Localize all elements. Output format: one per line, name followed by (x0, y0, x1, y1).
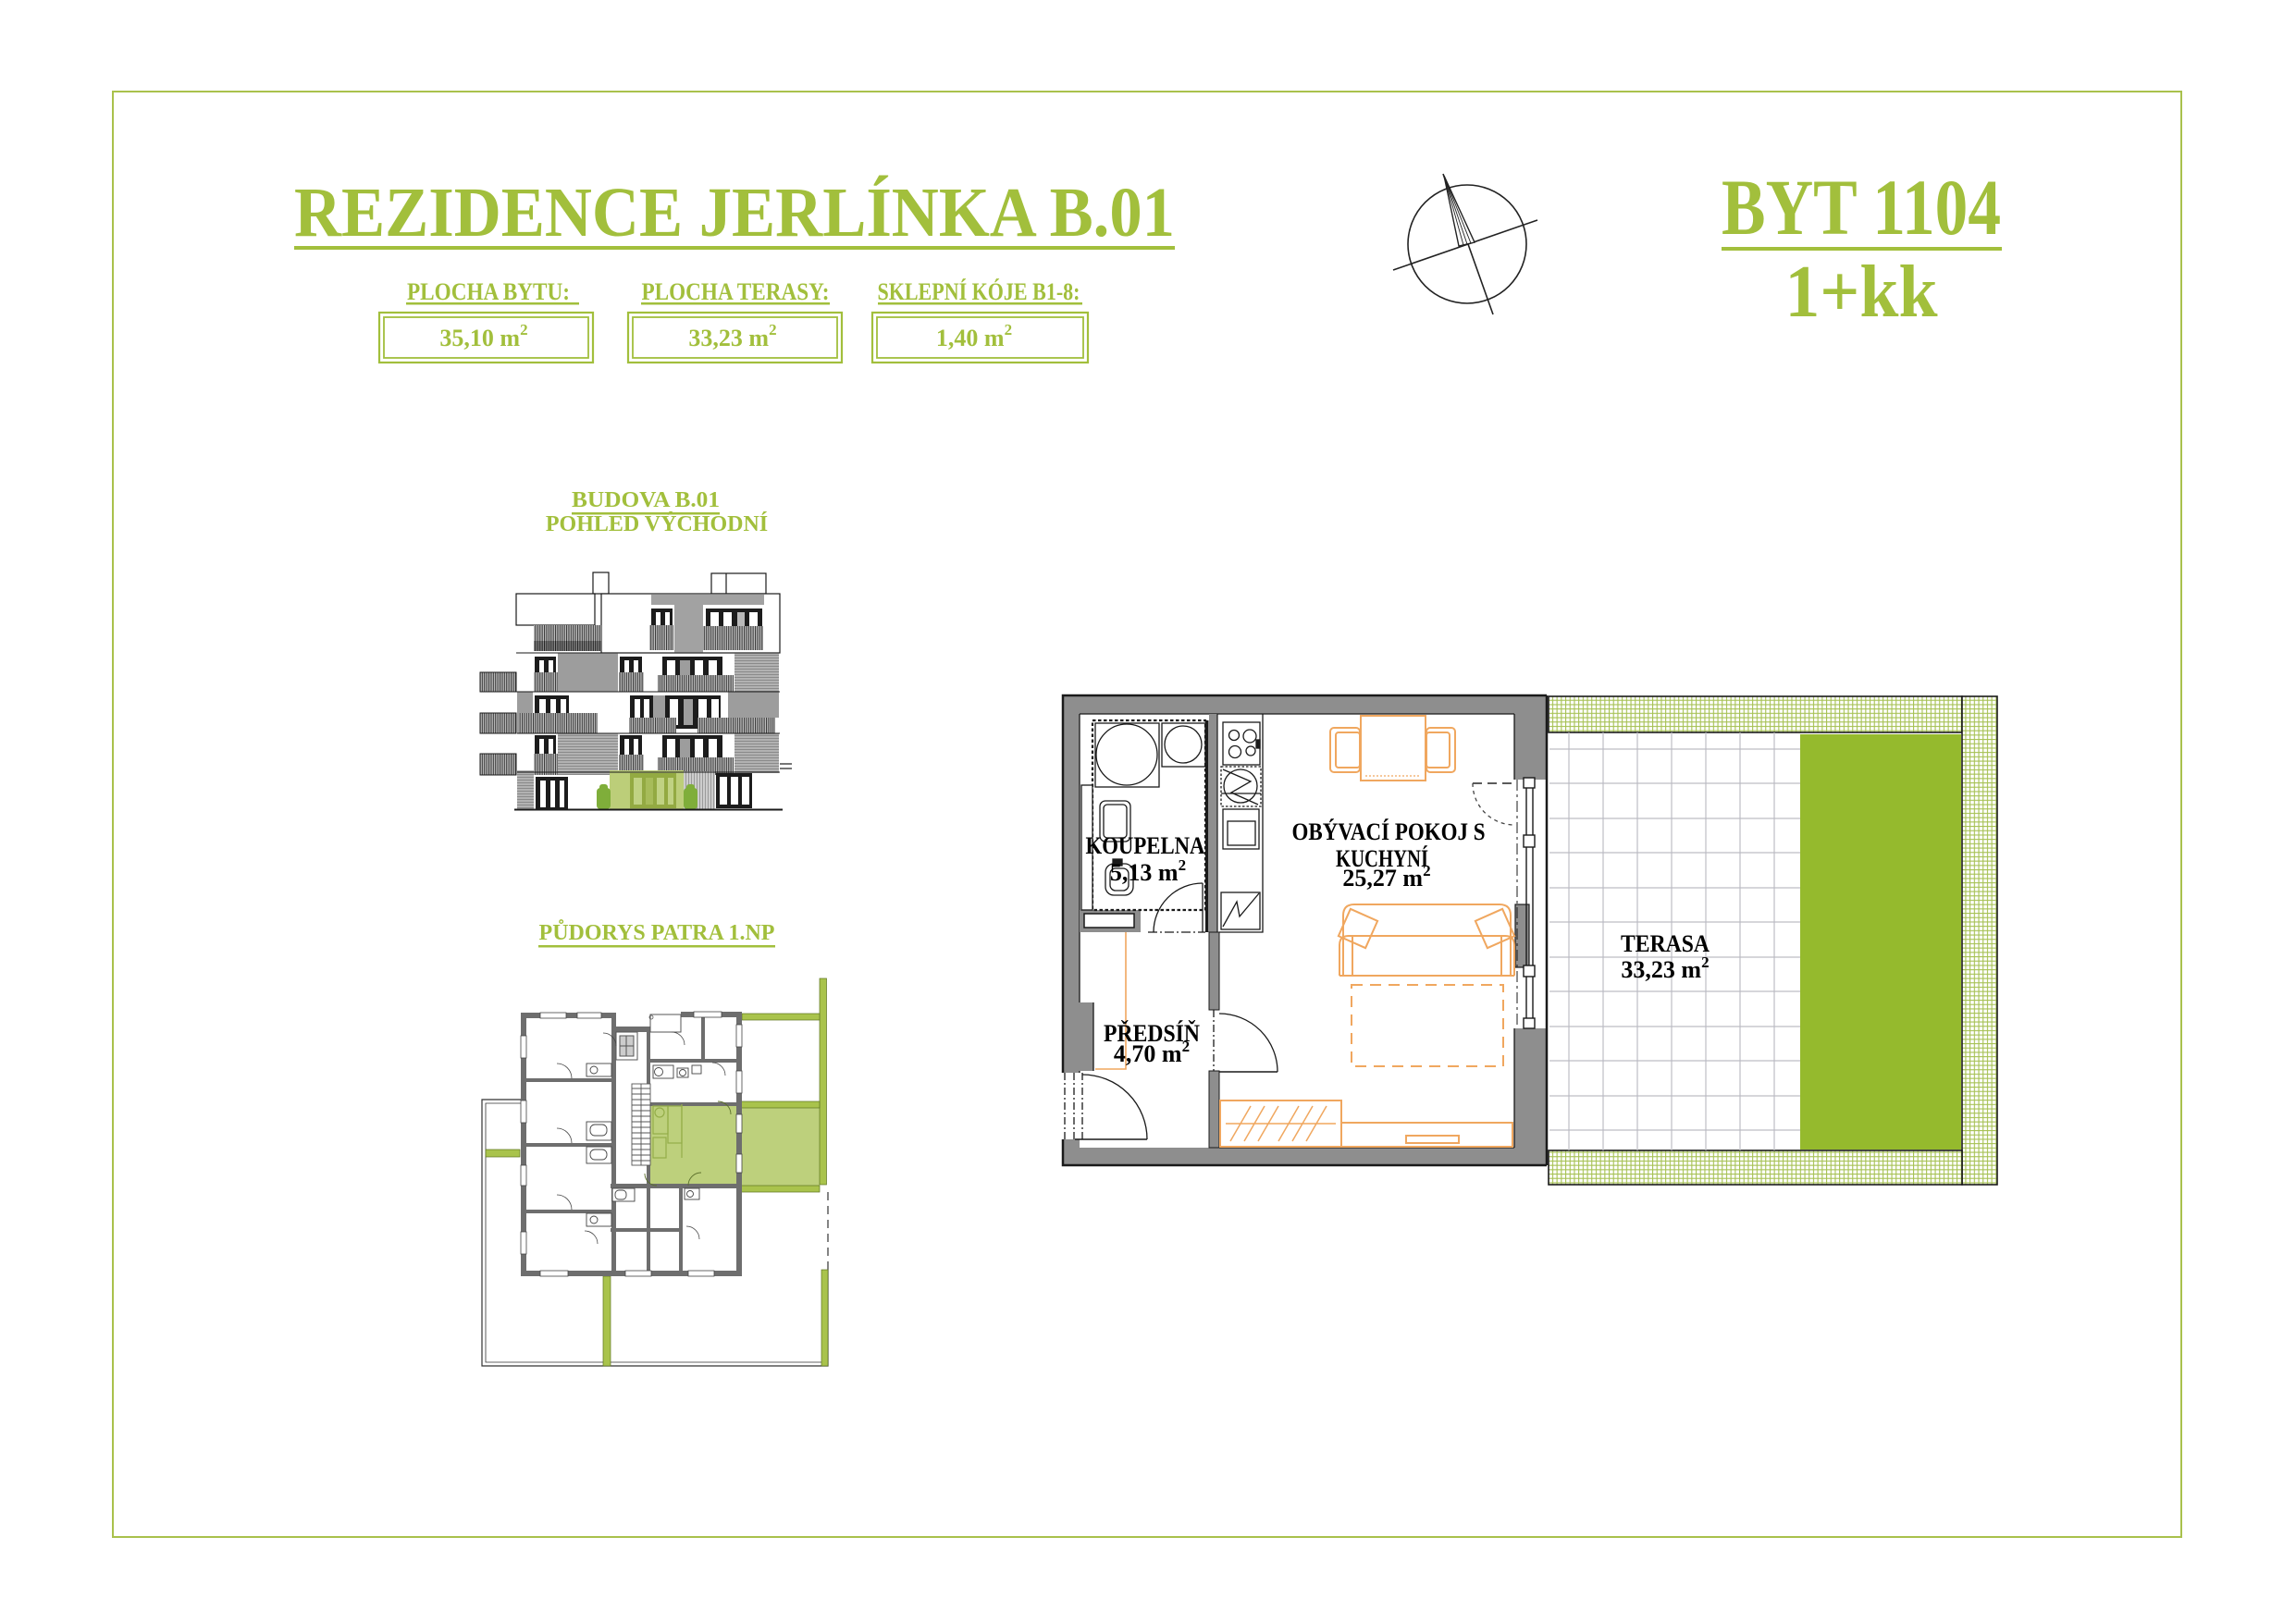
svg-text:KOUPELNA: KOUPELNA (1086, 832, 1205, 859)
svg-text:33,23 m2: 33,23 m2 (688, 321, 776, 351)
svg-text:OBÝVACÍ POKOJ S: OBÝVACÍ POKOJ S (1292, 818, 1486, 845)
svg-text:1+kk: 1+kk (1785, 252, 1938, 333)
svg-text:5,13 m2: 5,13 m2 (1110, 856, 1186, 886)
svg-text:PLOCHA BYTU:: PLOCHA BYTU: (407, 278, 570, 305)
svg-text:REZIDENCE JERLÍNKA B.01: REZIDENCE JERLÍNKA B.01 (294, 174, 1175, 252)
svg-text:BUDOVA B.01: BUDOVA B.01 (572, 488, 720, 512)
svg-text:PLOCHA TERASY:: PLOCHA TERASY: (642, 278, 830, 305)
svg-text:4,70 m2: 4,70 m2 (1114, 1038, 1190, 1067)
svg-text:POHLED VÝCHODNÍ: POHLED VÝCHODNÍ (546, 512, 768, 536)
svg-text:BYT 1104: BYT 1104 (1722, 163, 2001, 252)
svg-text:TERASA: TERASA (1621, 930, 1710, 957)
svg-text:PŮDORYS PATRA 1.NP: PŮDORYS PATRA 1.NP (539, 919, 775, 945)
svg-text:1,40 m2: 1,40 m2 (936, 321, 1012, 351)
svg-text:35,10 m2: 35,10 m2 (439, 321, 527, 351)
svg-text:SKLEPNÍ KÓJE B1-8:: SKLEPNÍ KÓJE B1-8: (878, 278, 1080, 305)
svg-text:33,23 m2: 33,23 m2 (1621, 953, 1709, 983)
svg-text:25,27 m2: 25,27 m2 (1342, 862, 1430, 891)
